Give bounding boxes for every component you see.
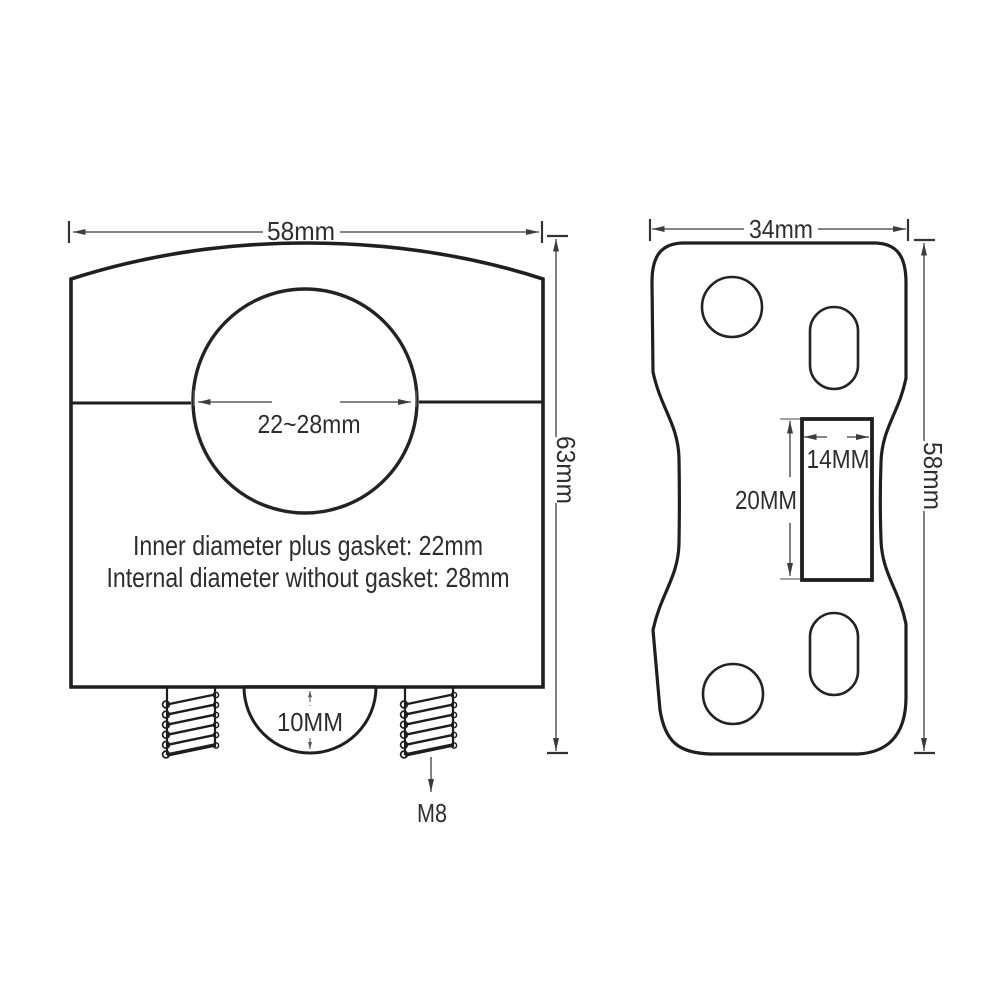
gasket-note-line1: Inner diameter plus gasket: 22mm [133, 530, 483, 561]
front-view: 22~28mm Inner diameter plus gasket: 22mm… [69, 216, 581, 828]
hole-slot-bottom [810, 613, 858, 695]
m8-label: M8 [417, 798, 447, 828]
handlebar-riser-diagram: 22~28mm Inner diameter plus gasket: 22mm… [0, 0, 1000, 1000]
top-view: 14MM 20MM 34mm 58mm [650, 214, 948, 754]
stud-left [163, 687, 219, 758]
plate-height-label: 58mm [918, 442, 948, 510]
boss-dim-label: 10MM [277, 707, 343, 737]
technical-drawing-page: 22~28mm Inner diameter plus gasket: 22mm… [0, 0, 1000, 1000]
hole-circle-top [702, 277, 762, 337]
hole-circle-bottom [703, 664, 763, 724]
front-height-label: 63mm [551, 436, 581, 504]
plate-width-label: 34mm [749, 214, 813, 244]
stud-right [401, 687, 457, 758]
gasket-note-line2: Internal diameter without gasket: 28mm [107, 562, 510, 593]
hole-slot-top [810, 307, 858, 389]
slot-depth-label: 20MM [735, 485, 797, 515]
front-width-label: 58mm [267, 216, 335, 246]
slot-width-label: 14MM [807, 444, 870, 474]
bore-circle [193, 289, 417, 513]
bore-dim-label: 22~28mm [258, 409, 361, 439]
